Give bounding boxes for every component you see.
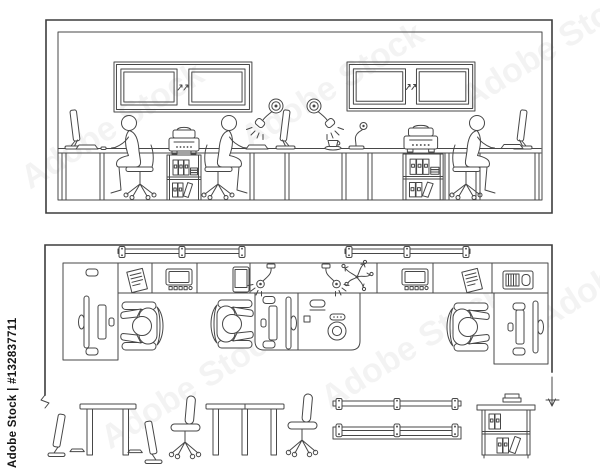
keyboard-icon	[246, 145, 268, 149]
paper-tray-icon	[263, 341, 275, 348]
coffee-cup-icon	[325, 141, 341, 151]
bookshelf-icon	[477, 394, 535, 458]
ceiling-light-icon	[345, 247, 470, 258]
printer-icon	[404, 125, 438, 152]
paper-tray-icon	[86, 269, 98, 276]
paper-tray-icon	[513, 348, 525, 355]
watermark-tile: Adobe Stock	[454, 0, 600, 117]
paper-tray-icon	[86, 348, 98, 355]
desk-left	[63, 263, 118, 360]
light-fixture-plan-icon	[333, 424, 461, 439]
ceiling-light-icon	[118, 247, 245, 258]
monitor-side-icon	[48, 414, 65, 457]
office-line-drawing: Adobe Stock Adobe Stock Adobe Stock Adob…	[0, 0, 600, 474]
printer-icon	[169, 127, 199, 154]
direction-arrow-icon	[546, 377, 559, 406]
table-icon	[206, 404, 284, 455]
stock-illustration-office-cad-drawing: Adobe Stock Adobe Stock Adobe Stock Adob…	[0, 0, 600, 474]
adobe-stock-watermark: Adobe Stock | #132837711	[7, 317, 19, 468]
shelf-unit-icon	[403, 154, 443, 200]
telephone-icon	[310, 300, 325, 307]
keyboard-icon	[76, 145, 98, 149]
printer-top-icon	[503, 271, 533, 289]
keyboard-side-icon	[70, 449, 84, 452]
watermark-tiles: Adobe Stock Adobe Stock Adobe Stock Adob…	[14, 0, 600, 457]
mouse-icon	[101, 147, 106, 150]
office-chair-icon	[286, 394, 317, 457]
mug-icon	[328, 322, 346, 340]
plan-view	[41, 245, 559, 408]
wall-break-icon	[41, 395, 49, 408]
seated-worker-top-icon	[211, 300, 253, 348]
shelf-unit-icon	[167, 155, 201, 200]
seated-worker-top-icon	[121, 302, 163, 350]
speakerphone-icon	[330, 314, 345, 320]
desk-lamp-icon	[349, 123, 367, 150]
keyboard-side-icon	[128, 450, 142, 453]
seated-worker-icon	[450, 116, 495, 200]
paper-tray-icon	[513, 303, 525, 310]
paper-tray-icon	[263, 297, 275, 304]
monitor-icon	[513, 110, 532, 149]
keyboard-icon	[501, 145, 523, 149]
tablet-icon	[233, 267, 249, 292]
